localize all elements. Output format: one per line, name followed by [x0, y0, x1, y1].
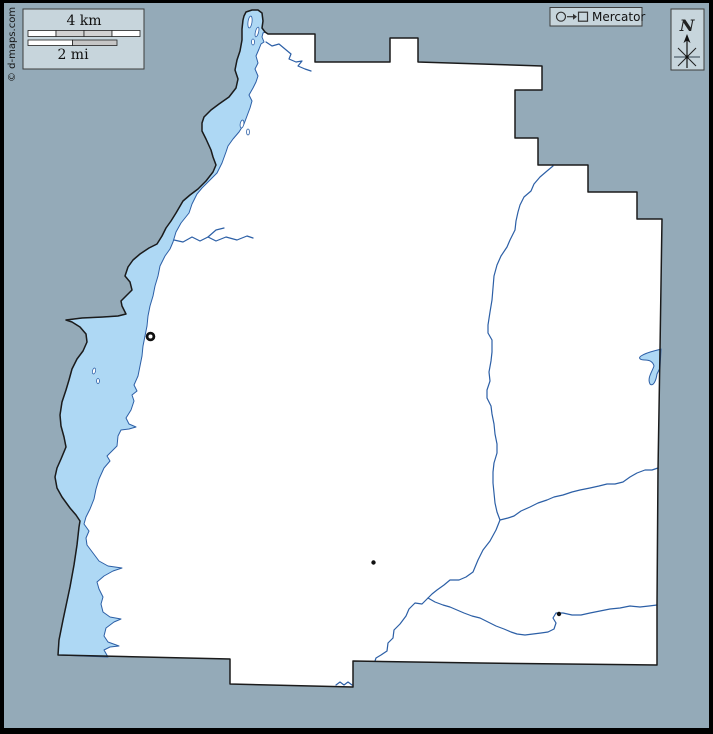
mi-bar — [28, 40, 117, 46]
compass: N — [671, 9, 704, 70]
north-label: N — [679, 16, 696, 35]
km-bar — [28, 31, 140, 37]
scale-mi-label: 2 mi — [57, 47, 89, 63]
town-marker-dot — [557, 612, 561, 616]
projection-label: Mercator — [592, 10, 645, 24]
copyright-attribution: © d-maps.com — [7, 7, 18, 82]
scale-bar: 4 km 2 mi — [23, 9, 144, 69]
projection-legend: Mercator — [550, 8, 645, 27]
map-canvas: 4 km 2 mi Mercator N — [0, 0, 713, 734]
scale-km-label: 4 km — [66, 13, 101, 29]
town-marker-ring — [147, 333, 154, 340]
outline-map-svg: 4 km 2 mi Mercator N — [0, 0, 713, 734]
town-marker-dot — [371, 560, 375, 564]
